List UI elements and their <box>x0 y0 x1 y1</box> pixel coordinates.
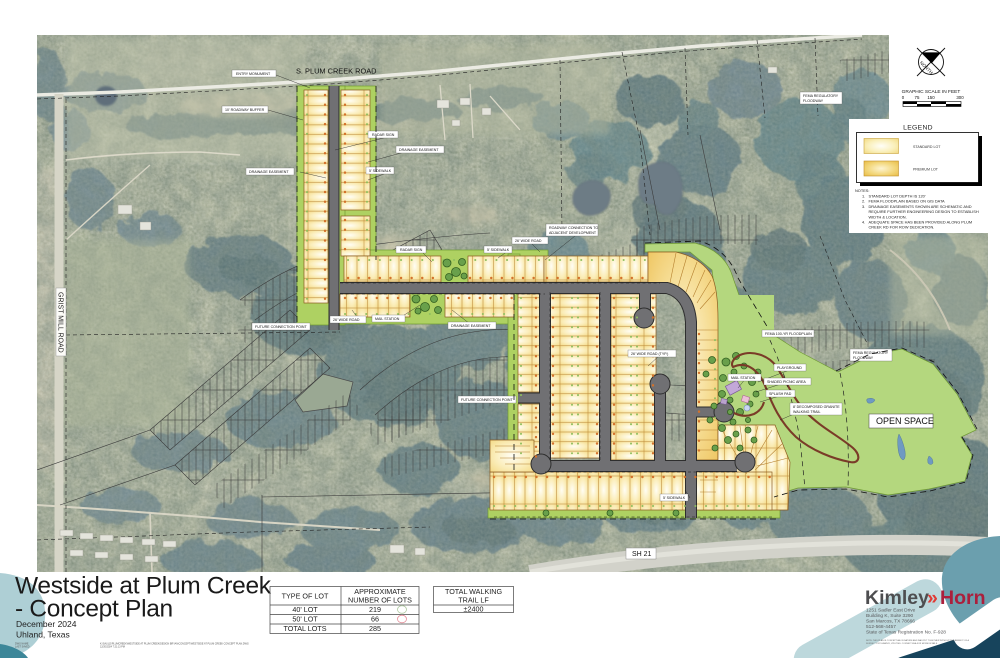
svg-text:Horn: Horn <box>940 587 986 609</box>
svg-text:Kimley: Kimley <box>865 587 929 609</box>
svg-text:LEGEND: LEGEND <box>903 125 933 132</box>
svg-text:State of Texas Registration No: State of Texas Registration No. F-928 <box>866 630 946 636</box>
svg-text:Building K, Suite 3290: Building K, Suite 3290 <box>866 613 914 619</box>
svg-text:NUMBER OF LOTS: NUMBER OF LOTS <box>348 596 412 605</box>
svg-text:S. PLUM CREEK ROAD: S. PLUM CREEK ROAD <box>296 67 377 76</box>
svg-text:FUTURE CONNECTION POINT: FUTURE CONNECTION POINT <box>255 325 308 329</box>
svg-text:512-568-4457: 512-568-4457 <box>866 624 896 630</box>
svg-text:26' WIDE ROAD: 26' WIDE ROAD <box>515 239 542 243</box>
svg-text:26' WIDE ROAD (TYP.): 26' WIDE ROAD (TYP.) <box>631 352 668 356</box>
svg-text:8' DECOMPOSED GRANITE: 8' DECOMPOSED GRANITE <box>793 405 840 409</box>
svg-text:MAIL STATION: MAIL STATION <box>375 317 400 321</box>
svg-text:DRAINAGE EASEMENT: DRAINAGE EASEMENT <box>249 170 289 174</box>
svg-text:285: 285 <box>369 624 381 633</box>
svg-text:FUTURE CONNECTION POINT: FUTURE CONNECTION POINT <box>461 398 514 402</box>
svg-text:12/20/2024 7:21:13 PM: 12/20/2024 7:21:13 PM <box>100 646 125 649</box>
svg-text:OPEN SPACE: OPEN SPACE <box>876 416 934 426</box>
svg-text:RADAR SIGN: RADAR SIGN <box>372 133 395 137</box>
svg-text:PLAYGROUND: PLAYGROUND <box>777 366 802 370</box>
svg-text:66: 66 <box>371 615 379 624</box>
svg-text:LAST SAVED: LAST SAVED <box>15 646 30 649</box>
svg-text:NOTE: THIS PLAN IS CONCEPTUAL: NOTE: THIS PLAN IS CONCEPTUAL IN NATURE … <box>866 639 969 642</box>
svg-text:GRIST MILL ROAD: GRIST MILL ROAD <box>57 292 64 353</box>
svg-text:FEMA REGULATORY: FEMA REGULATORY <box>803 94 839 98</box>
svg-text:ENTRY MONUMENT: ENTRY MONUMENT <box>236 72 271 76</box>
svg-text:1251 Sadler East Drive: 1251 Sadler East Drive <box>866 608 916 614</box>
svg-text:TOTAL LOTS: TOTAL LOTS <box>283 624 326 633</box>
svg-text:40' LOT: 40' LOT <box>292 605 318 614</box>
svg-text:SURVEY, TOPOGRAPHY, UTILITIES.: SURVEY, TOPOGRAPHY, UTILITIES. CONTACT K… <box>866 642 938 645</box>
svg-text:CREEK RD FOR ROW DEDICATION.: CREEK RD FOR ROW DEDICATION. <box>869 225 935 230</box>
svg-text:5' SIDEWALK: 5' SIDEWALK <box>487 248 510 252</box>
svg-text:±2400: ±2400 <box>464 605 484 614</box>
svg-text:150: 150 <box>927 95 935 100</box>
svg-text:5' SIDEWALK: 5' SIDEWALK <box>663 496 686 500</box>
svg-text:WALKING TRAIL: WALKING TRAIL <box>793 410 821 414</box>
svg-text:300: 300 <box>956 95 964 100</box>
svg-text:FLOODWAY: FLOODWAY <box>803 99 824 103</box>
svg-text:STANDARD LOT: STANDARD LOT <box>913 145 941 149</box>
svg-text:ADJACENT DEVELOPMENT: ADJACENT DEVELOPMENT <box>549 231 597 235</box>
svg-text:ROADWAY CONNECTION TO: ROADWAY CONNECTION TO <box>549 226 598 230</box>
svg-text:Uhland, Texas: Uhland, Texas <box>16 630 70 640</box>
svg-text:SHADED PICNIC AREA: SHADED PICNIC AREA <box>767 380 806 384</box>
svg-text:TYPE OF LOT: TYPE OF LOT <box>282 592 329 601</box>
svg-text:San Marcos, TX 78666: San Marcos, TX 78666 <box>866 619 915 625</box>
svg-text:SPLASH PAD: SPLASH PAD <box>769 392 792 396</box>
svg-text:DRAINAGE EASEMENT: DRAINAGE EASEMENT <box>399 148 439 152</box>
svg-text:FEMA 100-YR FLOODPLAIN: FEMA 100-YR FLOODPLAIN <box>765 332 812 336</box>
svg-text:10' ROADWAY BUFFER: 10' ROADWAY BUFFER <box>225 108 265 112</box>
svg-text:FLOODWAY: FLOODWAY <box>853 356 874 360</box>
svg-text:RADAR SIGN: RADAR SIGN <box>400 248 423 252</box>
svg-text:50' LOT: 50' LOT <box>292 615 318 624</box>
svg-text:5' SIDEWALK: 5' SIDEWALK <box>369 169 392 173</box>
svg-text:MAIL STATION: MAIL STATION <box>731 376 756 380</box>
svg-text:NOTES:: NOTES: <box>855 188 869 193</box>
svg-text:75: 75 <box>915 95 920 100</box>
svg-text:219: 219 <box>369 605 381 614</box>
svg-text:PREMIUM LOT: PREMIUM LOT <box>913 168 939 172</box>
svg-text:»: » <box>927 587 938 609</box>
svg-text:DRAINAGE EASEMENT: DRAINAGE EASEMENT <box>451 324 491 328</box>
svg-text:SH 21: SH 21 <box>632 551 652 558</box>
svg-text:TRAIL LF: TRAIL LF <box>458 596 489 605</box>
svg-text:26' WIDE ROAD: 26' WIDE ROAD <box>333 318 360 322</box>
svg-text:December 2024: December 2024 <box>16 619 77 629</box>
